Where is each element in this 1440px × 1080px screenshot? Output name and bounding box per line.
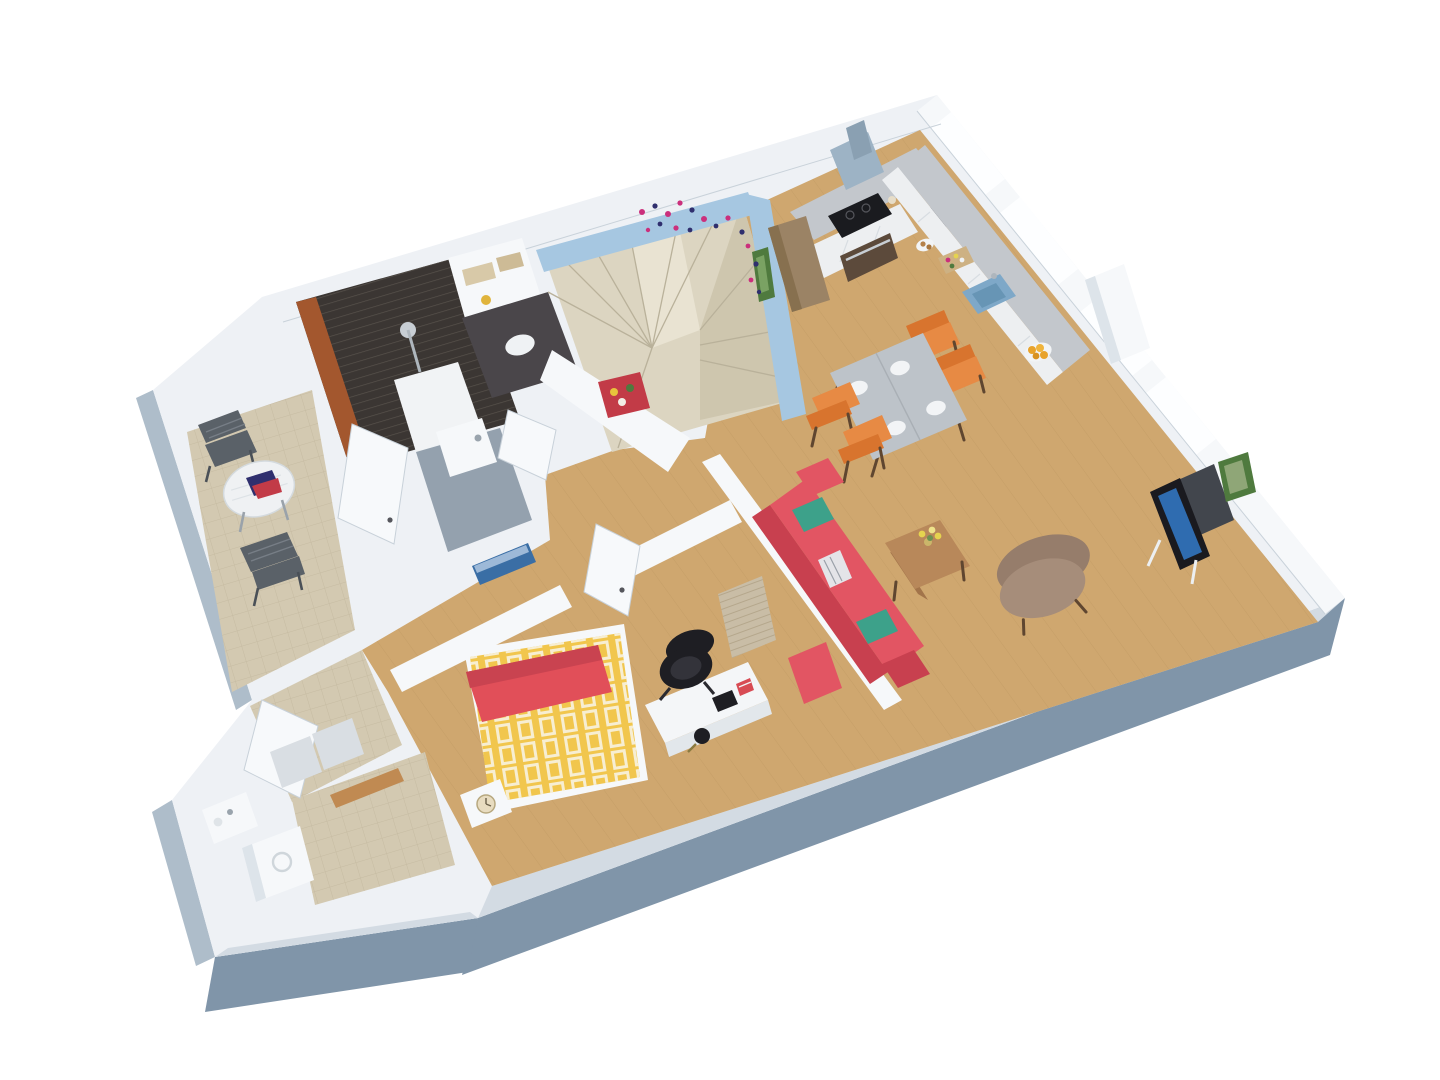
bathroom-door-handle — [387, 517, 392, 522]
shelf-bottle — [481, 295, 491, 305]
jar-1 — [888, 196, 896, 204]
washbasin-faucet — [475, 435, 482, 442]
flower-poster-dot-2 — [626, 384, 634, 392]
floor-plan-stage — [0, 0, 1440, 1080]
bedroom-door-handle — [619, 587, 624, 592]
floor-plan-render — [0, 0, 1440, 1080]
sink-faucet — [991, 273, 997, 279]
flower-poster-dot-1 — [610, 388, 618, 396]
utility-faucet — [227, 809, 233, 815]
flower-poster-dot-3 — [618, 398, 626, 406]
